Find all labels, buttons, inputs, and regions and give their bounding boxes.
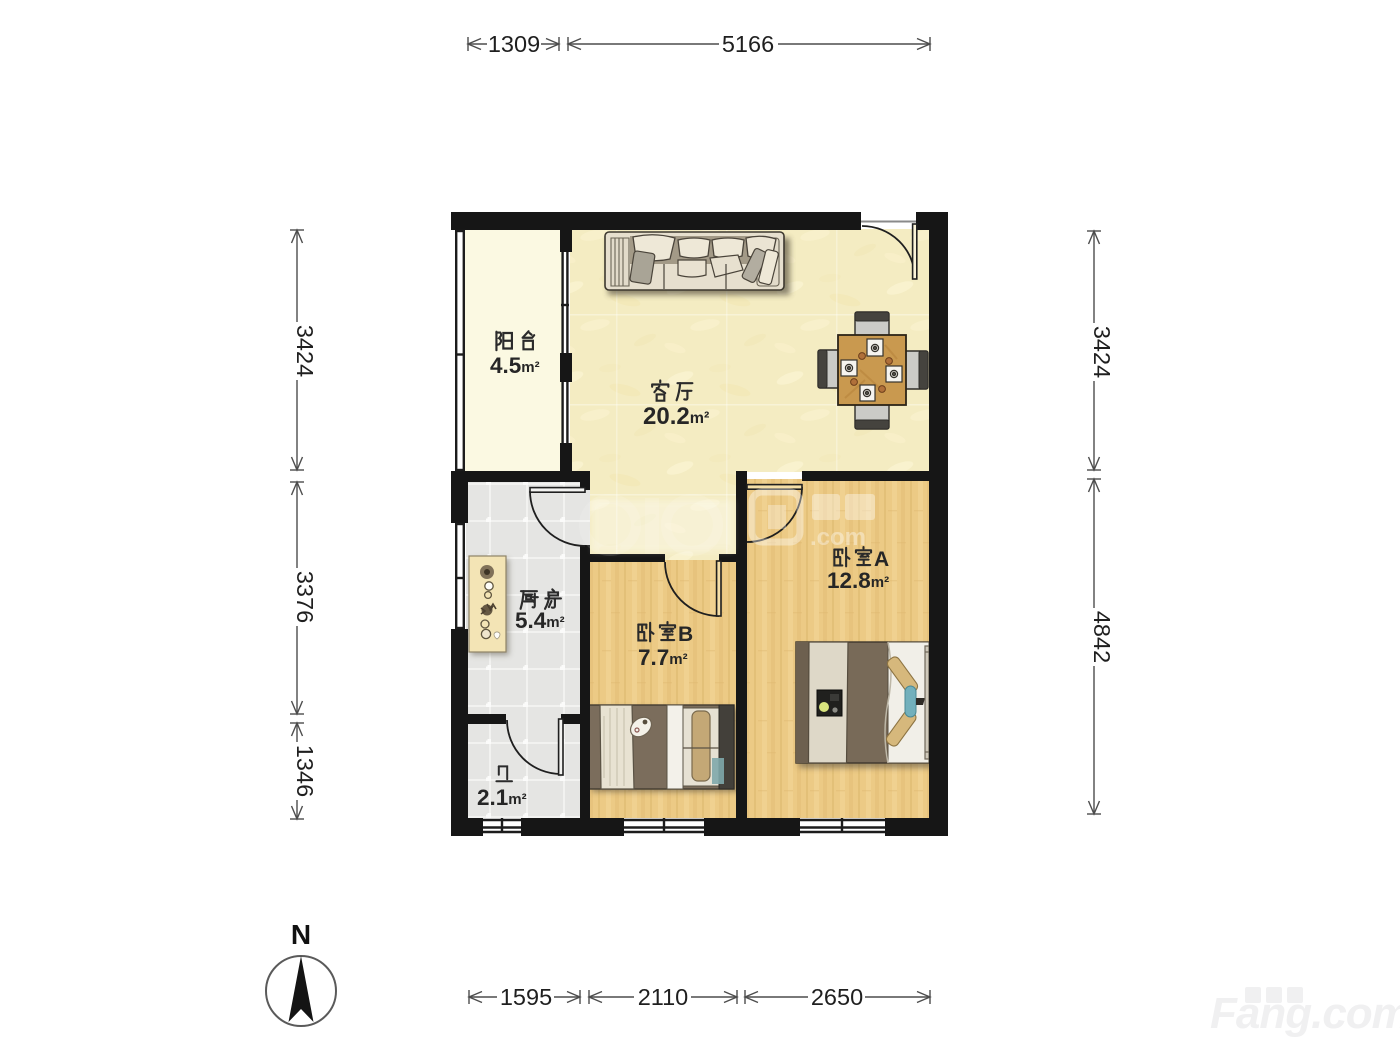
svg-text:3424: 3424 — [1089, 326, 1115, 378]
svg-text:.com: .com — [810, 524, 866, 551]
svg-text:A: A — [874, 548, 889, 571]
svg-text:3376: 3376 — [292, 571, 318, 623]
svg-text:3424: 3424 — [292, 325, 318, 377]
svg-text:2110: 2110 — [638, 984, 689, 1010]
svg-text:5166: 5166 — [722, 31, 774, 57]
svg-text:B: B — [678, 623, 693, 646]
svg-text:1309: 1309 — [488, 31, 540, 57]
svg-text:N: N — [291, 919, 311, 950]
svg-text:Fang.com: Fang.com — [1210, 989, 1400, 1038]
svg-text:4842: 4842 — [1089, 611, 1115, 663]
svg-text:1346: 1346 — [292, 745, 318, 797]
svg-text:2650: 2650 — [811, 984, 863, 1010]
svg-text:1595: 1595 — [500, 984, 552, 1010]
